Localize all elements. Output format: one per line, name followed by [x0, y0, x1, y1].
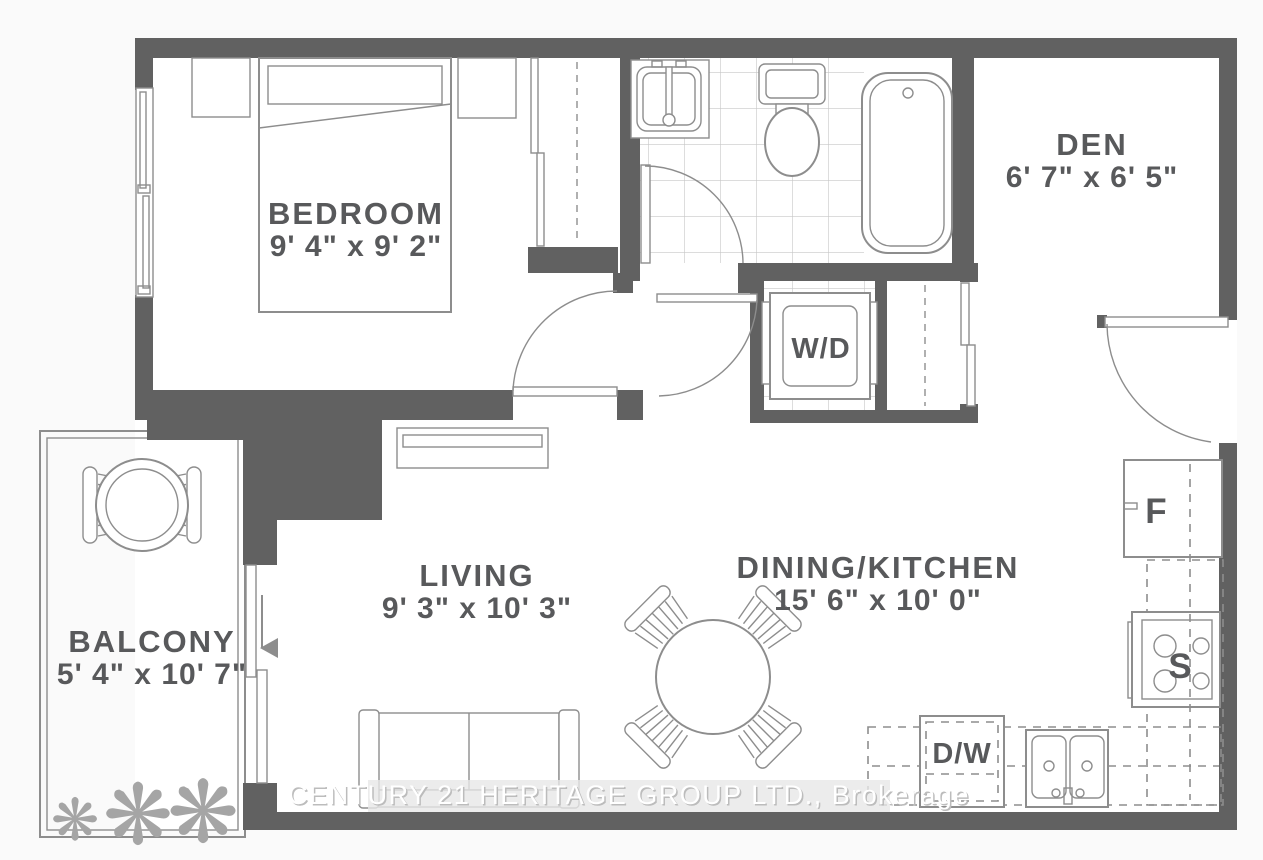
bathroom-sink	[631, 60, 709, 138]
stove-label: S	[1168, 647, 1191, 686]
balcony-dimensions: 5' 4" x 10' 7"	[57, 658, 247, 691]
bedroom-label: BEDROOM	[268, 196, 444, 231]
plant-icon: ❋	[51, 788, 100, 853]
dining-kitchen-label: DINING/KITCHEN	[737, 550, 1020, 585]
dining-table	[656, 620, 770, 734]
living-dimensions: 9' 3" x 10' 3"	[382, 592, 572, 625]
watermark-text: CENTURY 21 HERITAGE GROUP LTD., Brokerag…	[288, 780, 970, 810]
balcony-table	[96, 459, 188, 551]
balcony-label: BALCONY	[68, 624, 235, 659]
closet-slider-panel	[967, 345, 975, 406]
closet-slider-panel	[961, 283, 969, 345]
closet-slider-panel	[531, 58, 538, 153]
washer-dryer-label: W/D	[791, 333, 850, 365]
closet-slider-panel	[537, 153, 544, 246]
media-console	[397, 428, 548, 468]
plant-icon: ❋	[103, 768, 173, 860]
laundry-closet: W/D	[762, 293, 877, 399]
stove: S	[1128, 612, 1220, 707]
floor-plan-svg: ❋ ❋ ❋ BALCONY 5' 4" x 10' 7"	[0, 0, 1263, 860]
floor-plan-image: ❋ ❋ ❋ BALCONY 5' 4" x 10' 7"	[0, 0, 1263, 860]
dining-kitchen-dimensions: 15' 6" x 10' 0"	[774, 584, 982, 617]
den-label: DEN	[1056, 127, 1127, 162]
fridge-label: F	[1145, 492, 1166, 531]
plant-icon: ❋	[167, 765, 239, 860]
balcony-plants: ❋ ❋ ❋	[51, 765, 239, 860]
nightstand-left	[192, 58, 250, 117]
kitchen-sink	[1026, 730, 1108, 807]
nightstand-right	[458, 58, 516, 118]
bedroom-window	[136, 88, 153, 297]
bedroom-dimensions: 9' 4" x 9' 2"	[270, 230, 442, 263]
bathtub	[862, 73, 952, 253]
watermark: CENTURY 21 HERITAGE GROUP LTD., Brokerag…	[288, 780, 971, 812]
den-dimensions: 6' 7" x 6' 5"	[1006, 161, 1178, 194]
dishwasher-label: D/W	[932, 738, 991, 770]
living-label: LIVING	[419, 558, 534, 593]
bed	[259, 58, 451, 312]
fridge: F	[1124, 460, 1222, 557]
